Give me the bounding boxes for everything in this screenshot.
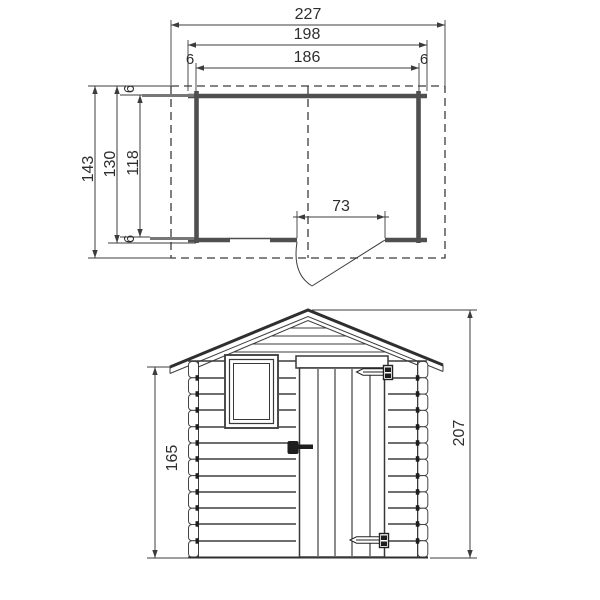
dim-total-depth: 143 (80, 86, 98, 258)
plan-door-swing (296, 240, 385, 286)
door-leaf (300, 368, 385, 557)
dim-outer-depth: 130 (102, 86, 120, 243)
dim-label-total-width: 227 (295, 6, 322, 23)
dim-wall-height: 165 (147, 367, 189, 558)
door-swing-arc (296, 242, 312, 286)
dim-inner-width: 186 (196, 49, 419, 91)
shed-technical-drawing: 227 198 186 6 6 (0, 0, 600, 600)
dim-label-corner-right: 6 (420, 51, 428, 68)
dim-label-inner-depth: 118 (125, 150, 142, 176)
dim-inner-depth: 118 (125, 95, 143, 237)
plan-roof-outline (171, 86, 445, 258)
dim-label-outer-depth: 130 (102, 151, 119, 178)
dim-label-outer-width: 198 (294, 26, 321, 43)
drawing-canvas: 227 198 186 6 6 (0, 0, 600, 600)
dim-label-wall-height: 165 (164, 445, 181, 472)
front-elevation: 165 207 (147, 310, 477, 558)
dim-label-corner-bottom: 6 (121, 235, 138, 243)
door (288, 356, 393, 557)
dim-label-total-depth: 143 (80, 156, 97, 183)
dim-label-corner-top: 6 (121, 85, 138, 93)
dim-label-door-width: 73 (332, 198, 350, 215)
door-header (296, 356, 388, 368)
dim-label-inner-width: 186 (294, 49, 321, 66)
floor-plan: 227 198 186 6 6 (80, 6, 445, 286)
window (225, 355, 278, 428)
dim-label-total-height: 207 (451, 420, 468, 447)
corner-log-ends-right (418, 362, 428, 558)
dim-label-corner-left: 6 (186, 51, 194, 68)
plan-dimensions: 227 198 186 6 6 (80, 6, 445, 258)
door-leaf (312, 240, 385, 286)
plan-walls (142, 91, 427, 243)
window-glass (234, 364, 270, 420)
